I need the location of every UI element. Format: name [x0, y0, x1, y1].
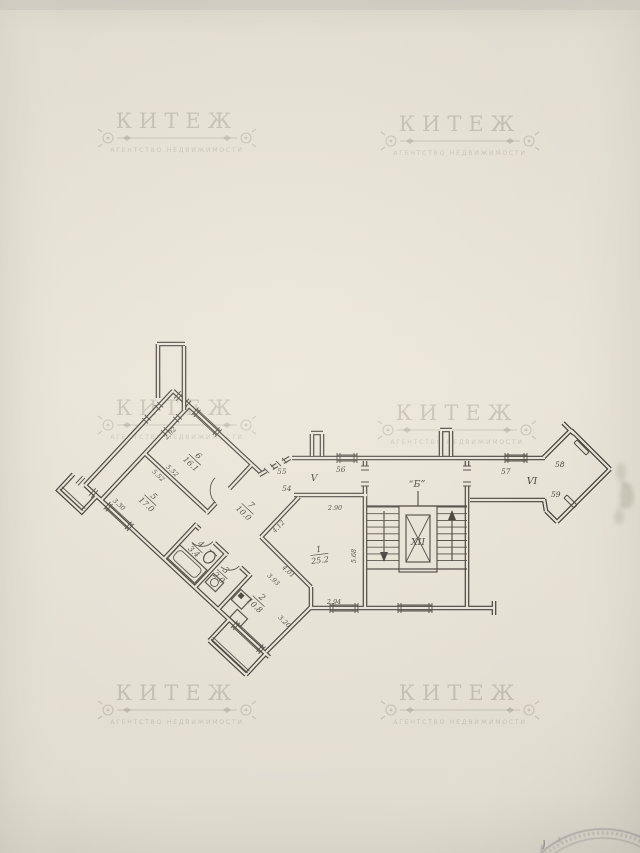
- dim-5-68: 5.68: [350, 549, 358, 563]
- floor-plan-canvas: КИТЕЖ АГЕНТСТВО НЕДВИЖИМОСТИ КИТЕЖ АГЕНТ…: [0, 0, 640, 853]
- watermark-4: КИТЕЖ АГЕНТСТВО НЕДВИЖИМОСТИ: [378, 401, 536, 446]
- photo-top-edge: [0, 0, 640, 10]
- watermark-1: КИТЕЖ АГЕНТСТВО НЕДВИЖИМОСТИ: [98, 109, 256, 154]
- watermark-title: КИТЕЖ: [399, 681, 522, 705]
- watermark-subtitle: АГЕНТСТВО НЕДВИЖИМОСТИ: [390, 439, 523, 446]
- watermark-5: КИТЕЖ АГЕНТСТВО НЕДВИЖИМОСТИ: [98, 681, 256, 726]
- opening-58: 58: [555, 460, 565, 469]
- dim-2-94: 2.94: [326, 598, 341, 606]
- opening-57: 57: [501, 467, 511, 476]
- watermark-6: КИТЕЖ АГЕНТСТВО НЕДВИЖИМОСТИ: [381, 681, 539, 726]
- dim-2-90: 2.90: [327, 504, 342, 512]
- watermark-subtitle: АГЕНТСТВО НЕДВИЖИМОСТИ: [110, 719, 243, 726]
- opening-55: 55: [277, 467, 287, 476]
- watermark-subtitle: АГЕНТСТВО НЕДВИЖИМОСТИ: [110, 147, 243, 154]
- watermark-title: КИТЕЖ: [116, 681, 239, 705]
- watermark-title: КИТЕЖ: [396, 401, 519, 425]
- stairwell-label: “Б”: [409, 479, 426, 490]
- opening-54: 54: [282, 484, 292, 493]
- watermark-title: КИТЕЖ: [399, 112, 522, 136]
- corridor-v-label: V: [311, 473, 319, 484]
- paper-side-shade: [0, 0, 640, 853]
- elevator-label: XII: [410, 537, 426, 548]
- watermark-subtitle: АГЕНТСТВО НЕДВИЖИМОСТИ: [393, 719, 526, 726]
- watermark-subtitle: АГЕНТСТВО НЕДВИЖИМОСТИ: [393, 150, 526, 157]
- watermark-2: КИТЕЖ АГЕНТСТВО НЕДВИЖИМОСТИ: [381, 112, 539, 157]
- floor-plan-photo: КИТЕЖ АГЕНТСТВО НЕДВИЖИМОСТИ КИТЕЖ АГЕНТ…: [0, 0, 640, 853]
- opening-56: 56: [336, 465, 346, 474]
- opening-59: 59: [551, 490, 561, 499]
- watermark-title: КИТЕЖ: [116, 109, 239, 133]
- corridor-vi-label: VI: [527, 476, 538, 487]
